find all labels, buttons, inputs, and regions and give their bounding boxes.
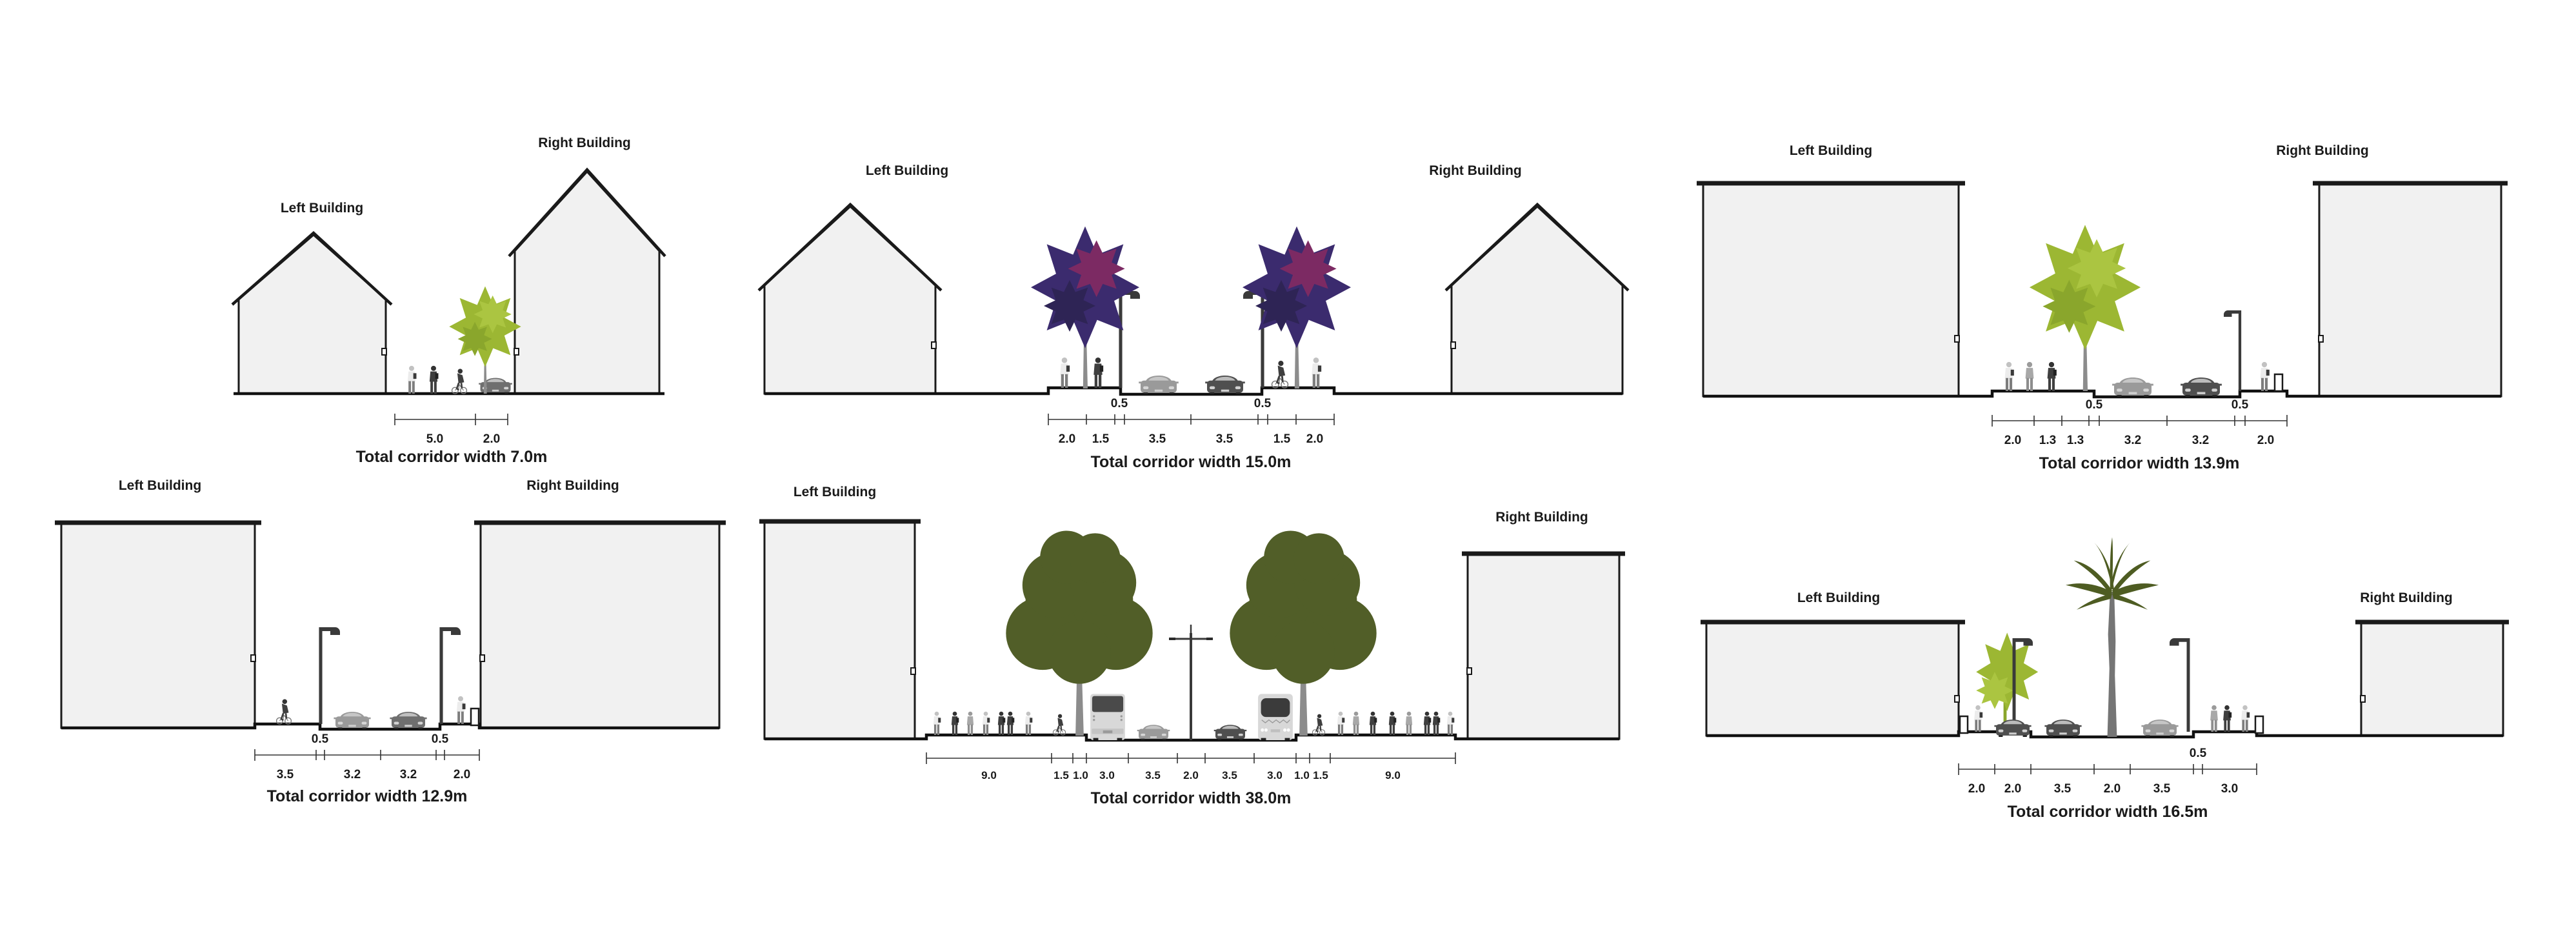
dimension-label: 2.0 [483,432,500,446]
dimension-line: 0.5 0.5 3.5 3.2 3.2 2.0 [255,732,479,781]
pedestrian-icon [1974,705,1982,732]
pedestrian-icon [1093,357,1103,388]
pedestrian-icon [2261,362,2270,391]
dimension-label: 2.0 [2004,782,2021,796]
lime-tree-icon [2030,225,2141,391]
dimension-label: 3.2 [344,768,361,781]
dimension-label: 2.0 [1968,782,1985,796]
right-building-label: Right Building [526,478,619,493]
right-building [1468,554,1619,739]
pedestrian-icon [1424,712,1431,735]
dimension-line: 0.5 0.5 2.0 1.3 1.3 3.2 3.2 2.0 [1992,398,2287,447]
car-icon [1137,725,1170,740]
car-icon [1994,720,2031,737]
panel-corridor-12-9m: Left Building Right Building 0.5 0.5 3.5… [55,478,726,805]
right-building-label: Right Building [2360,590,2452,605]
pedestrian-icon [1389,712,1396,735]
left-building [239,235,386,394]
dimension-label: 2.0 [454,768,470,781]
pedestrian-icon [1025,712,1032,735]
pedestrian-icon [2048,362,2057,391]
pedestrian-icon [952,712,959,735]
bus-icon [1090,694,1125,740]
palm-tree-icon [2066,537,2159,737]
dimension-line: 5.0 2.0 [395,414,508,446]
dimension-label: 3.5 [2054,782,2072,796]
dimension-label: 1.3 [2039,434,2056,447]
cyclist-icon [1272,361,1288,388]
pedestrian-icon [1447,712,1454,735]
right-building-label: Right Building [1495,510,1588,525]
pedestrian-icon [1406,712,1413,735]
dimension-label: 2.0 [1306,432,1323,446]
diagram-svg: Left Building Right Building 5.0 2.0 Tot… [0,0,2576,946]
dimension-label: 3.5 [1145,769,1161,781]
total-width-label: Total corridor width 13.9m [2039,454,2240,472]
dimension-label: 2.0 [2104,782,2121,796]
dimension-label: 3.2 [2124,434,2141,447]
lamp-post-icon [319,627,340,724]
buffer-dimension-label: 0.5 [1254,397,1272,410]
panel-corridor-38m: Left Building Right Building [759,485,1625,807]
right-building [2319,183,2501,396]
panel-corridor-15m: Left Building Right Building 0.5 0.5 2.0… [759,163,1628,471]
pedestrian-icon [1060,357,1070,388]
dimension-label: 3.2 [2192,434,2209,447]
dimension-label: 9.0 [981,769,997,781]
car-icon [1139,376,1179,394]
left-building-label: Left Building [866,163,948,178]
dimension-label: 3.5 [1222,769,1237,781]
center-lamp-post-icon [1169,625,1213,740]
dimension-label: 3.0 [1099,769,1115,781]
pedestrian-icon [2005,362,2014,391]
left-building-label: Left Building [794,485,876,499]
street-cross-sections-canvas: Left Building Right Building 5.0 2.0 Tot… [0,0,2576,946]
pedestrian-icon [1433,712,1440,735]
car-icon [2181,377,2222,397]
pedestrian-icon [408,366,417,394]
pedestrian-icon [1337,712,1344,735]
pedestrian-icon [2026,362,2035,391]
total-width-label: Total corridor width 38.0m [1091,789,1292,807]
dimension-label: 1.5 [1053,769,1069,781]
dimension-label: 2.0 [2257,434,2274,447]
dimension-line: 0.5 0.5 2.0 1.5 3.5 3.5 1.5 2.0 [1048,397,1334,446]
right-building [515,172,659,394]
dimension-label: 1.0 [1073,769,1088,781]
pedestrian-icon [983,712,990,735]
cyclist-icon [452,369,467,394]
dimension-label: 3.2 [400,768,417,781]
pedestrian-icon [998,712,1005,735]
buffer-dimension-label: 0.5 [2086,398,2103,412]
dimension-label: 1.5 [1092,432,1110,446]
bus-icon [1258,694,1293,740]
dimension-label: 3.5 [1216,432,1233,446]
curb-block [2275,374,2282,391]
olive-tree-icon [1230,530,1376,736]
left-building-label: Left Building [1790,143,1872,158]
buffer-dimension-label: 0.5 [1111,397,1128,410]
car-icon [1205,376,1245,394]
pedestrian-icon [2210,705,2219,732]
cyclist-icon [1053,714,1065,735]
purple-tree-icon [1031,226,1139,388]
dimension-label: 9.0 [1385,769,1401,781]
car-icon [334,712,370,729]
curb-block [1960,716,1968,733]
total-width-label: Total corridor width 15.0m [1091,453,1292,471]
total-width-label: Total corridor width 12.9m [267,787,468,805]
pedestrian-icon [1353,712,1360,735]
dimension-label: 2.0 [1183,769,1199,781]
dimension-label: 3.0 [1267,769,1283,781]
pedestrian-icon [457,696,466,724]
total-width-label: Total corridor width 16.5m [2008,803,2208,821]
left-building [61,523,255,728]
car-icon [479,378,512,394]
panel-corridor-7m: Left Building Right Building 5.0 2.0 Tot… [232,136,665,466]
left-building-label: Left Building [119,478,201,493]
panel-corridor-16-5m: Left Building Right Building 0.5 2.0 2.0… [1701,537,2509,821]
pedestrian-icon [2223,705,2232,732]
dimension-label: 5.0 [426,432,443,446]
right-building [2361,622,2503,736]
car-icon [2044,720,2081,737]
right-building-label: Right Building [2276,143,2368,158]
lamp-post-icon [2170,638,2190,732]
dimension-label: 1.5 [1273,432,1291,446]
car-icon [1214,725,1247,740]
left-building [764,521,915,739]
pedestrian-icon [1007,712,1014,735]
left-building [1706,622,1959,736]
buffer-dimension-label: 0.5 [2190,747,2207,760]
car-icon [2112,377,2153,397]
pedestrian-icon [1312,357,1321,388]
dimension-line: 9.0 1.5 1.0 3.0 3.5 2.0 3.5 3.0 1.0 1.5 … [926,752,1455,781]
dimension-label: 3.5 [2153,782,2171,796]
left-building-label: Left Building [281,201,363,216]
dimension-label: 1.5 [1313,769,1328,781]
lamp-post-icon [1119,291,1140,388]
dimension-label: 3.5 [277,768,294,781]
olive-tree-icon [1006,530,1152,736]
pedestrian-icon [934,712,941,735]
dimension-line: 0.5 2.0 2.0 3.5 2.0 3.5 3.0 [1959,747,2257,796]
car-icon [2141,720,2178,737]
right-building [1452,206,1622,394]
left-building-label: Left Building [1797,590,1880,605]
pedestrian-icon [1370,712,1377,735]
right-building-label: Right Building [1429,163,1521,178]
panel-corridor-13-9m: Left Building Right Building 0.5 0.5 2.0… [1697,143,2508,472]
pedestrian-icon [430,366,439,394]
car-icon [390,712,426,729]
buffer-dimension-label: 0.5 [432,732,449,746]
purple-tree-icon [1243,226,1351,388]
cyclist-icon [1312,714,1324,735]
dimension-label: 3.5 [1149,432,1166,446]
buffer-dimension-label: 0.5 [312,732,329,746]
left-building [1703,183,1959,396]
curb-block [2255,716,2263,733]
pedestrian-icon [2241,705,2250,732]
pedestrian-icon [967,712,974,735]
total-width-label: Total corridor width 7.0m [356,448,548,466]
dimension-label: 1.3 [2067,434,2084,447]
dimension-label: 3.0 [2221,782,2238,796]
right-building [481,523,719,728]
dimension-label: 1.0 [1294,769,1310,781]
right-building-label: Right Building [538,136,630,150]
curb-block [471,709,479,725]
cyclist-icon [277,699,292,725]
dimension-label: 2.0 [1059,432,1075,446]
lamp-post-icon [2224,310,2241,391]
left-building [764,206,935,394]
dimension-label: 2.0 [2004,434,2021,447]
buffer-dimension-label: 0.5 [2232,398,2249,412]
shrub-icon [1976,632,2038,732]
